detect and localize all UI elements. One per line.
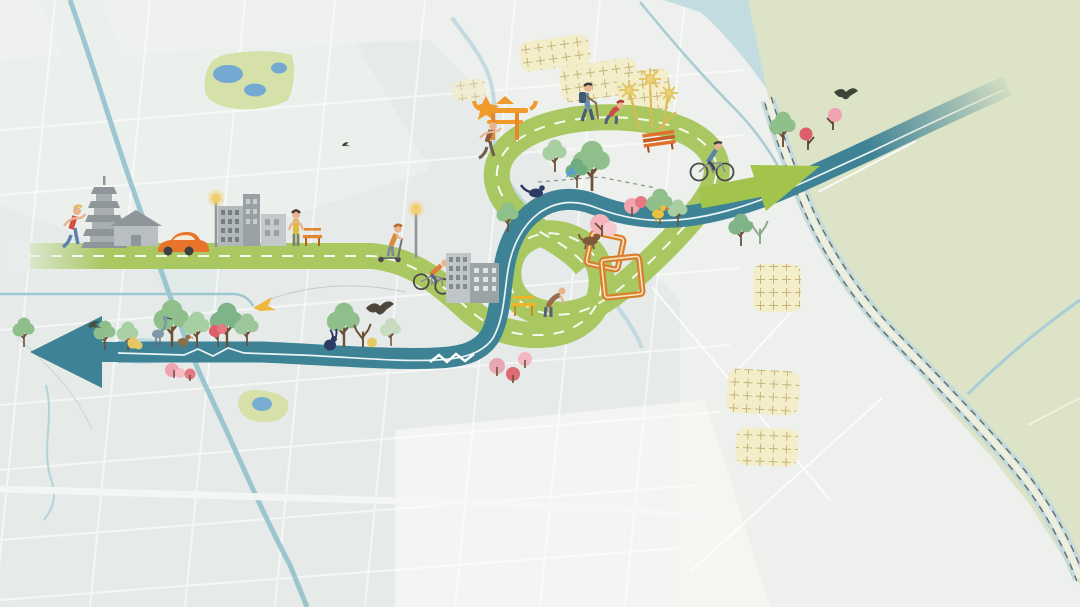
map-canvas [0, 0, 1080, 607]
illustrated-map [0, 0, 1080, 607]
lake-park [205, 51, 294, 109]
